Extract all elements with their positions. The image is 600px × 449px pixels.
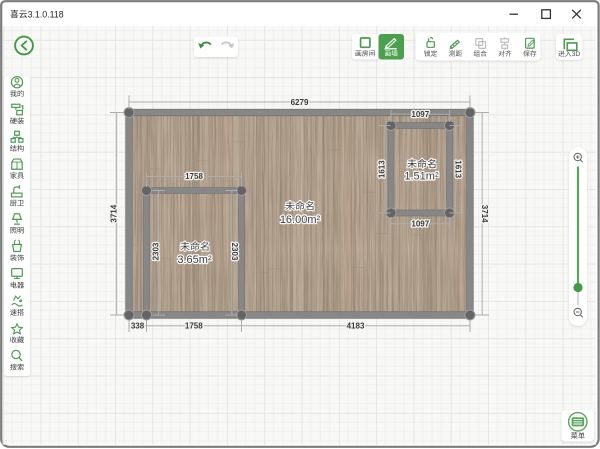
svg-text:338: 338	[131, 322, 145, 331]
svg-text:3.1.0.118: 3.1.0.118	[28, 9, 64, 19]
svg-text:1097: 1097	[411, 220, 429, 229]
svg-text:1758: 1758	[185, 322, 203, 331]
svg-text:1613: 1613	[454, 160, 463, 178]
svg-text:1758: 1758	[185, 172, 203, 181]
svg-text:1613: 1613	[377, 160, 386, 178]
svg-text:3D: 3D	[572, 51, 581, 58]
svg-text:3714: 3714	[480, 205, 489, 223]
svg-text:3.65m²: 3.65m²	[177, 254, 212, 266]
svg-text:1.51m²: 1.51m²	[404, 170, 439, 182]
svg-text:2303: 2303	[152, 242, 161, 260]
svg-text:1097: 1097	[411, 110, 429, 119]
svg-text:16.00m²: 16.00m²	[280, 214, 321, 226]
svg-text:6279: 6279	[291, 98, 309, 107]
svg-text:3714: 3714	[110, 204, 119, 222]
svg-text:4183: 4183	[347, 322, 365, 331]
svg-text:2303: 2303	[230, 243, 239, 261]
